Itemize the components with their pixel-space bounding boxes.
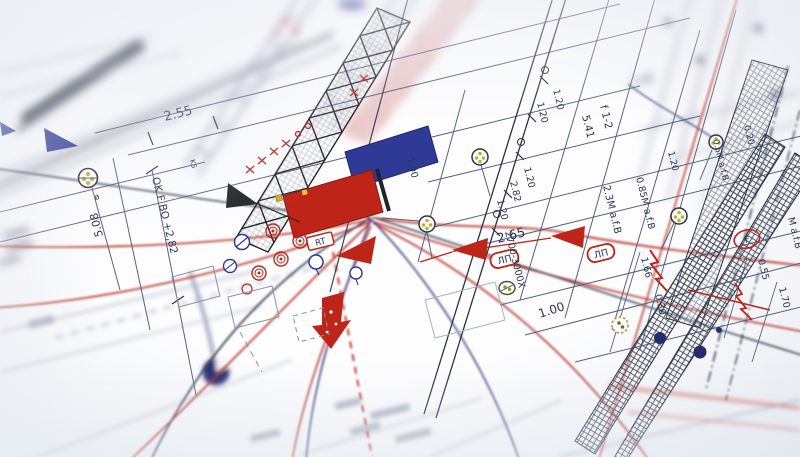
dim-label-100b: 1.00: [537, 299, 567, 321]
elevation-label: OK F BO +2,82: [149, 176, 180, 255]
black-arrow: [226, 183, 258, 208]
afb23-label: 2.3M a.f.B: [600, 184, 623, 235]
dim-label-265: 2.65: [495, 225, 527, 247]
utility-corridor-band: [424, 0, 566, 418]
f12-label: f 1-2: [597, 104, 614, 130]
blueprint-photo: 3.48: [0, 0, 800, 457]
node-blob: [694, 346, 707, 359]
ks-label: KS: [188, 159, 198, 170]
dim-label-255: 2.55: [162, 103, 194, 125]
dim-label-282: 2.82: [507, 180, 523, 203]
dim-label-170: 1.70: [776, 286, 792, 309]
afb085-label: 0.85M a.f.B: [633, 176, 657, 230]
afb-right-label: M a.f.B: [785, 216, 800, 250]
plan-drawing: 3.48: [0, 0, 800, 457]
dim-label-166: 1.66: [638, 256, 654, 279]
blurred-text-smudges: [27, 315, 431, 443]
yellow-marker: [275, 194, 282, 201]
blue-blob: [338, 0, 366, 10]
dim-label-508: 5.08: [87, 212, 106, 239]
node-blob: [654, 332, 666, 344]
foreground-blur-band: [28, 46, 138, 118]
blue-arrow: [44, 128, 78, 152]
dim-label-120a: 1.20: [534, 101, 550, 124]
dim-label-120c: 1.20: [521, 166, 537, 189]
diameter-glyph: ø: [93, 192, 100, 202]
dim-label-541: 5.41: [579, 114, 596, 140]
rt-box: RT: [306, 232, 334, 251]
